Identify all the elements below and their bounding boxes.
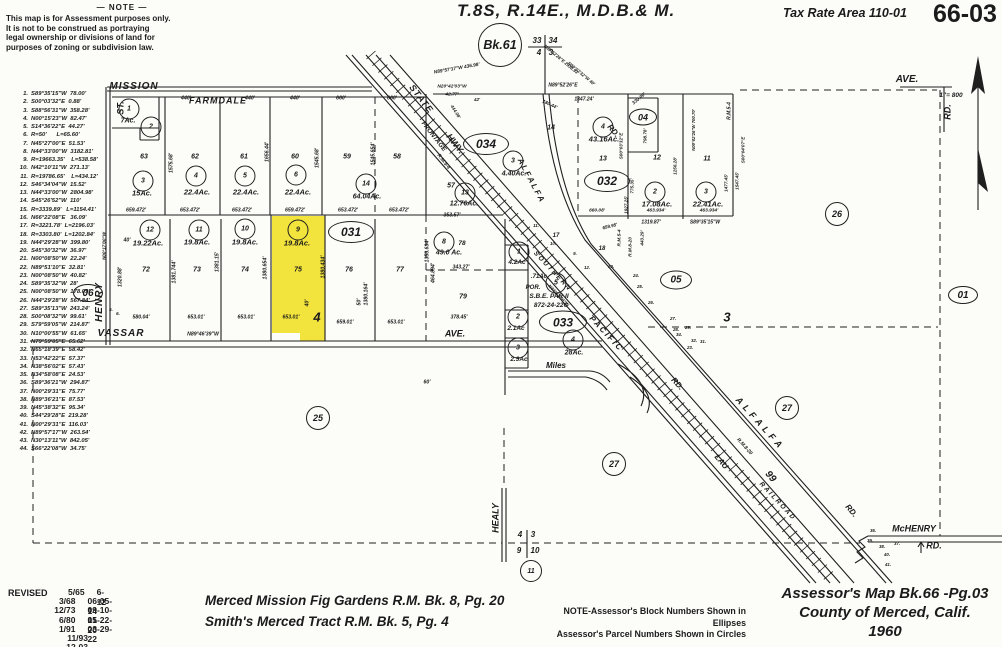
parcel-number-circle: 5 — [235, 166, 256, 187]
map-label: N89°46'39"W — [187, 332, 219, 337]
map-label: 1256.28' — [674, 157, 679, 175]
map-label: 660.08' — [589, 210, 605, 215]
map-label: RD. — [944, 104, 953, 120]
map-label: 1"= 800 — [939, 93, 962, 100]
map-label: 28Ac. — [565, 350, 584, 357]
map-label: 34 — [549, 37, 558, 45]
parcel-number-circle: 2 — [645, 182, 666, 203]
parcel-number-circle: 27 — [775, 396, 799, 420]
map-label: 440' — [181, 96, 191, 101]
map-label: 42.77' — [445, 94, 458, 99]
map-label: 653.01' — [282, 315, 299, 320]
map-label: 440' — [245, 96, 255, 101]
map-label: 775.35' — [631, 178, 636, 193]
map-label: 4.40Ac. — [502, 171, 527, 178]
map-label: 444.08' — [449, 105, 461, 120]
map-label: 24. — [633, 274, 639, 278]
map-label: S89°35'15"W — [690, 221, 720, 226]
map-label: 659.95' — [602, 223, 618, 231]
map-label: 38. — [879, 545, 885, 549]
map-label: 36. — [870, 529, 876, 533]
parcel-number-circle: 3 — [508, 338, 529, 359]
map-label: 40. — [884, 553, 890, 557]
block-number-ellipse: 04 — [629, 109, 657, 126]
map-label: 180.44' — [541, 100, 557, 111]
map-label: AVE. — [445, 330, 465, 339]
map-label: 659.01' — [336, 320, 353, 325]
map-label: 653.472' — [389, 208, 409, 213]
map-label: 1319.87' — [641, 221, 660, 226]
revision-row: 3/6806-05-14 — [42, 596, 112, 605]
map-label: 34. — [676, 333, 682, 337]
block-number-ellipse: 031 — [328, 221, 374, 243]
revision-row: 5/656-12 — [42, 587, 112, 596]
map-label: 1320.88' — [118, 267, 123, 287]
map-label: 1575.68' — [169, 153, 174, 173]
parcel-number-circle: 1 — [119, 99, 140, 120]
map-label: 1347.24' — [574, 98, 593, 103]
map-label: 29. — [685, 326, 691, 330]
parcel-number-circle: 9 — [288, 220, 309, 241]
map-label: 59 — [343, 154, 351, 161]
footer-note-line: Assessor's Parcel Numbers Shown in Circl… — [536, 629, 746, 641]
map-label: N89°57'17"W 436.98' — [434, 64, 481, 77]
map-label: R.M.5-4 — [619, 229, 624, 246]
map-label: 343.27' — [452, 265, 469, 270]
map-label: 1380.164' — [364, 283, 369, 306]
map-label: 1545.68' — [315, 148, 320, 168]
map-label: LAU — [713, 453, 730, 471]
block-number-ellipse: Bk.61 — [478, 23, 522, 67]
map-label: 4 — [313, 311, 320, 324]
map-label: 17 — [553, 233, 560, 239]
map-label: 1477.45' — [725, 174, 730, 192]
map-label: 12. — [584, 266, 590, 270]
map-label: RAILROAD — [757, 481, 796, 522]
map-label: 31. — [700, 340, 706, 344]
map-label: 32. — [691, 339, 697, 343]
subdivision-references: Merced Mission Fig Gardens R.M. Bk. 8, P… — [205, 590, 504, 632]
map-ref-title: Assessor's Map Bk.66 -Pg.03 — [772, 584, 998, 603]
assessor-map-page: — NOTE — This map is for Assessment purp… — [0, 0, 1002, 647]
parcel-number-circle: 11 — [189, 220, 210, 241]
map-label: 74 — [241, 267, 249, 274]
map-label: 3 — [723, 311, 730, 324]
map-label: RD. — [844, 503, 859, 519]
map-label: 1353.634' — [425, 240, 430, 263]
map-label: 653.472' — [180, 208, 200, 213]
map-ref-county: County of Merced, Calif. — [772, 603, 998, 622]
map-label: FRONTAGE — [419, 121, 446, 153]
parcel-number-circle: 25 — [306, 406, 330, 430]
parcel-number-circle: 3 — [503, 151, 524, 172]
parcel-number-circle: 26 — [825, 202, 849, 226]
map-label: 4 — [518, 531, 522, 539]
map-label: R.M.5-4 — [728, 102, 733, 120]
map-label: 660' — [336, 96, 346, 101]
parcel-number-circle: 6 — [286, 165, 307, 186]
map-label: R.M.8-20 — [735, 438, 752, 457]
map-label: FARMDALE — [189, 97, 247, 106]
map-label: 73 — [193, 267, 201, 274]
map-label: S00°03'32"E — [620, 133, 625, 160]
parcel-number-circle: 14 — [356, 174, 377, 195]
map-label: 62 — [191, 154, 199, 161]
map-label: 75 — [294, 267, 302, 274]
map-label: 660' — [387, 96, 397, 101]
map-label: S00°04'07"E — [742, 137, 747, 164]
map-label: RD. — [926, 542, 942, 551]
map-label: 13 — [599, 156, 607, 163]
parcel-number-circle: 3 — [133, 171, 154, 192]
map-label: 1547.45' — [736, 172, 741, 190]
parcel-number-circle: 4 — [186, 166, 207, 187]
map-label: 41. — [885, 563, 891, 567]
map-label: 22.4Ac. — [233, 188, 259, 196]
map-label: R.M.5-4 — [436, 153, 451, 170]
map-label: 5. — [109, 308, 113, 312]
map-label: 463.934' — [700, 210, 718, 215]
parcel-number-circle: 13 — [455, 183, 476, 204]
map-label: 653.01' — [387, 320, 404, 325]
map-label: 653.472' — [338, 208, 358, 213]
parcel-number-circle: 12 — [140, 220, 161, 241]
map-label: 50' — [357, 298, 362, 305]
map-label: 6. — [116, 312, 120, 316]
map-label: 11. — [533, 224, 539, 228]
map-label: N20°42'03"W — [437, 86, 466, 91]
map-label: STATE — [407, 83, 435, 115]
map-label: 19. — [608, 265, 614, 269]
map-label: 42' — [474, 98, 480, 103]
map-label: 1380.654' — [263, 257, 268, 280]
map-label: 11 — [703, 156, 710, 163]
map-label: 1381.744' — [172, 261, 177, 284]
parcel-number-circle: 2 — [508, 307, 529, 328]
map-label: 22.4Ac. — [184, 188, 210, 196]
map-label: 26. — [648, 301, 654, 305]
map-label: 33 — [533, 37, 542, 45]
map-label: 1545.654' — [371, 143, 376, 166]
map-label: 40' — [123, 238, 130, 243]
map-labels-layer: MISSIONFARMDALE440'440'440'660'660'ST.HE… — [0, 0, 1002, 647]
map-label: 58 — [393, 154, 401, 161]
map-label: 653.01' — [237, 315, 254, 320]
map-label: 653.01' — [187, 315, 204, 320]
parcel-number-circle: 27 — [602, 452, 626, 476]
map-label: 463.934' — [647, 210, 665, 215]
map-label: 12 — [653, 155, 661, 162]
map-label: VASSAR — [98, 329, 145, 339]
map-label: 659.472' — [285, 208, 305, 213]
map-label: 653.472' — [232, 208, 252, 213]
subdivision-ref: Merced Mission Fig Gardens R.M. Bk. 8, P… — [205, 590, 504, 611]
map-label: 10. — [550, 242, 556, 246]
map-label: 76 — [345, 267, 353, 274]
map-label: 9. — [573, 252, 577, 256]
map-label: 27. — [670, 317, 676, 321]
map-label: N89°52'26"E — [548, 84, 577, 89]
parcel-number-circle: 2 — [141, 117, 162, 138]
map-label: 25. — [637, 285, 643, 289]
map-label: 1656.44' — [265, 142, 270, 162]
map-reference: Assessor's Map Bk.66 -Pg.03 County of Me… — [772, 584, 998, 641]
map-label: 57 — [447, 183, 455, 190]
map-label: AVE. — [896, 75, 919, 85]
parcel-number-circle: 3 — [696, 182, 717, 203]
map-label: 4 — [537, 49, 541, 57]
map-label: POR. — [526, 285, 541, 291]
footer-note: NOTE-Assessor's Block Numbers Shown in E… — [536, 606, 746, 641]
map-label: 1927.25' — [625, 196, 630, 214]
revision-row: 12/7309-10-15 — [42, 605, 112, 614]
map-label: 10 — [531, 547, 540, 555]
map-label: 72 — [142, 267, 150, 274]
map-label: 659.472' — [126, 208, 146, 213]
map-label: 14 — [547, 125, 555, 132]
map-label: 79 — [459, 294, 467, 301]
revision-rows: 5/656-123/6806-05-1412/7309-10-156/8001-… — [42, 587, 112, 647]
map-label: 1381.15' — [215, 252, 220, 272]
block-number-ellipse: 034 — [463, 133, 509, 155]
map-label: .71Ac — [531, 274, 547, 280]
map-label: 63 — [140, 154, 148, 161]
map-label: 353.57' — [443, 213, 460, 218]
map-label: PACIFIC — [588, 315, 625, 354]
footer-note-line: NOTE-Assessor's Block Numbers Shown in E… — [536, 606, 746, 629]
block-number-ellipse: 032 — [584, 170, 630, 192]
revision-row: 1/9103-29-22 — [42, 624, 112, 633]
block-number-ellipse: 033 — [539, 311, 587, 334]
map-label: 798.78' — [644, 128, 649, 143]
map-label: McHENRY — [892, 525, 936, 534]
parcel-number-circle: 4 — [593, 117, 614, 138]
map-label: 64.04Ac. — [353, 194, 381, 201]
block-number-ellipse: 01 — [948, 286, 978, 304]
map-label: N00°17'00"W — [103, 232, 108, 260]
map-label: 39. — [867, 539, 873, 543]
map-label: MISSION — [109, 82, 158, 92]
map-label: HEALY — [492, 503, 501, 533]
map-label: 78 — [458, 241, 465, 248]
map-label: 23. — [687, 346, 693, 350]
map-label: 9 — [517, 547, 521, 555]
parcel-number-circle: 1 — [509, 242, 530, 263]
map-label: 1380.434' — [321, 256, 326, 279]
map-label: 3 — [531, 531, 535, 539]
map-label: 60 — [291, 154, 299, 161]
map-label: 18 — [599, 246, 606, 252]
map-label: R.M.8-20 — [630, 237, 635, 257]
map-label: 443.29' — [641, 230, 646, 245]
map-label: 580.04' — [132, 315, 149, 320]
map-label: 378.45' — [450, 315, 467, 320]
map-label: 440' — [290, 96, 300, 101]
map-label: 464.894' — [431, 263, 436, 283]
parcel-number-circle: 10 — [235, 219, 256, 240]
map-label: 61 — [240, 154, 248, 161]
block-number-ellipse: 06 — [73, 284, 103, 302]
map-label: N00°02'26"W 700.70' — [692, 109, 696, 151]
subdivision-ref: Smith's Merced Tract R.M. Bk. 5, Pg. 4 — [205, 611, 504, 632]
map-label: 40' — [305, 299, 310, 306]
map-label: 60' — [423, 380, 430, 385]
parcel-number-circle: 11 — [520, 560, 542, 582]
map-label: 77 — [396, 267, 404, 274]
revision-row: 6/8001-22-20 — [42, 615, 112, 624]
parcel-number-circle: 5 — [546, 273, 567, 294]
map-label: RD. — [669, 376, 684, 392]
map-label: 37. — [894, 542, 900, 546]
map-label: Miles — [546, 362, 566, 370]
map-label: 330.00' — [632, 93, 647, 107]
revision-row: 12-03 — [42, 642, 112, 647]
revision-row: 11/93 — [42, 633, 112, 642]
parcel-number-circle: 8 — [434, 232, 455, 253]
block-number-ellipse: 05 — [660, 271, 692, 290]
map-label: 22.4Ac. — [285, 188, 311, 196]
map-ref-year: 1960 — [772, 622, 998, 641]
